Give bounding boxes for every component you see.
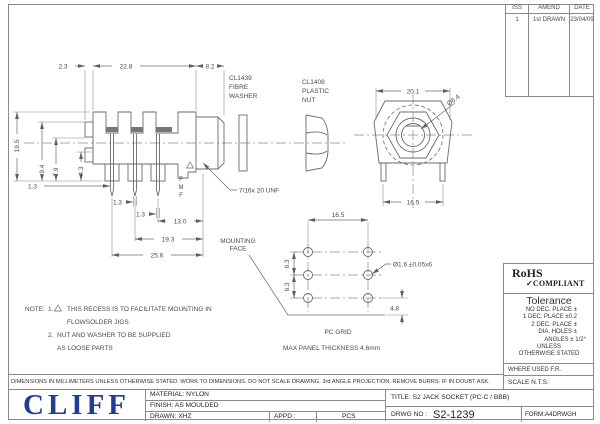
drawn-value: XHZ [178, 413, 191, 420]
material-label: MATERIAL: [150, 391, 184, 398]
col-iss: ISS [506, 4, 529, 13]
title-label: TITLE: [391, 394, 411, 401]
disclaimer-strip: DIMENSIONS IN MILLIMETERS UNLESS OTHERWI… [8, 374, 503, 389]
rohs-text: RoHS [504, 264, 594, 279]
col-amend: AMEND [529, 4, 570, 13]
appd-value: PCS [342, 412, 356, 422]
title-cell: TITLE: S2 JACK SOCKET (PC-C / BBB) DRWG … [385, 390, 594, 421]
material-value: NYLON [186, 391, 209, 398]
tolerance-title: Tolerance [504, 294, 594, 307]
revision-table: ISS AMEND DATE 1 1st DRAWN 23/04/09 [505, 4, 594, 97]
drwg-no-value: S2-1239 [433, 408, 475, 422]
rohs-logo: RoHS ✓COMPLIANT [503, 263, 594, 293]
appd-label: APPD : [274, 412, 296, 422]
finish-label: FINISH: [150, 402, 173, 409]
form-cell: FORM:A4DRWGH [521, 407, 594, 422]
finish-value: AS MOULDED [175, 402, 219, 409]
drwg-no-label: DRWG NO : [391, 407, 427, 422]
material-cell: MATERIAL: NYLON FINISH: AS MOULDED DRAWN… [145, 390, 385, 421]
title-value: S2 JACK SOCKET (PC-C / BBB) [413, 394, 510, 401]
scale-cell: SCALE N.T.S. [503, 375, 594, 389]
drawing-sheet: F M F CL1439 FIBRE WASHER CL1408 PLASTIC… [0, 0, 600, 424]
drawn-label: DRAWN: [150, 413, 177, 420]
cliff-logo: CLIFF [8, 390, 145, 421]
title-block: CLIFF MATERIAL: NYLON FINISH: AS MOULDED… [8, 389, 594, 420]
tolerance-block: Tolerance NO DEC. PLACE ± 1 DEC. PLACE ±… [503, 293, 594, 363]
col-date: DATE [570, 4, 594, 13]
revision-row: 1 1st DRAWN 23/04/09 [506, 14, 594, 26]
where-used-cell: WHERE USED F.R. [503, 363, 594, 375]
rohs-compliant-text: COMPLIANT [533, 279, 585, 288]
rohs-check-icon: ✓ [526, 279, 533, 288]
revision-table-header: ISS AMEND DATE [506, 4, 594, 14]
